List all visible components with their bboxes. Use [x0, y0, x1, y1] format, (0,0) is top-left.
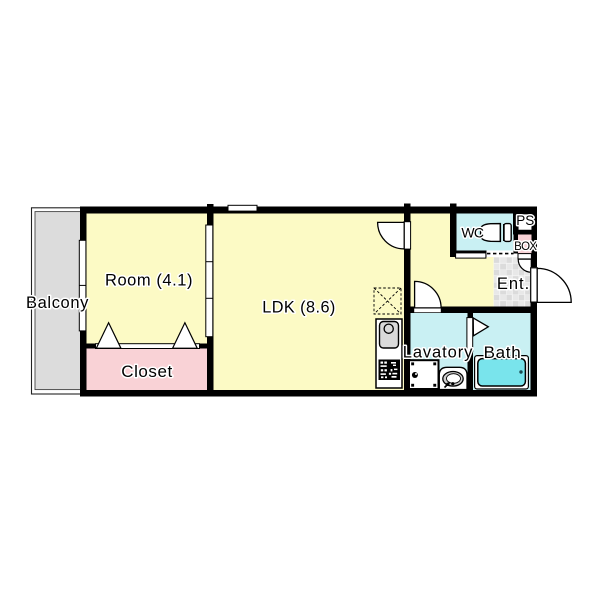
svg-text:Ent.: Ent. — [497, 275, 530, 293]
svg-text:Bath: Bath — [484, 343, 522, 362]
svg-text:Balcony: Balcony — [26, 294, 89, 312]
svg-text:Closet: Closet — [121, 362, 173, 381]
svg-text:LDK (8.6): LDK (8.6) — [262, 299, 336, 317]
svg-text:WC: WC — [461, 224, 483, 240]
svg-text:PS: PS — [516, 213, 534, 228]
svg-text:Lavatory: Lavatory — [403, 343, 474, 361]
svg-text:Room (4.1): Room (4.1) — [105, 272, 193, 290]
svg-text:BOX: BOX — [514, 241, 537, 253]
